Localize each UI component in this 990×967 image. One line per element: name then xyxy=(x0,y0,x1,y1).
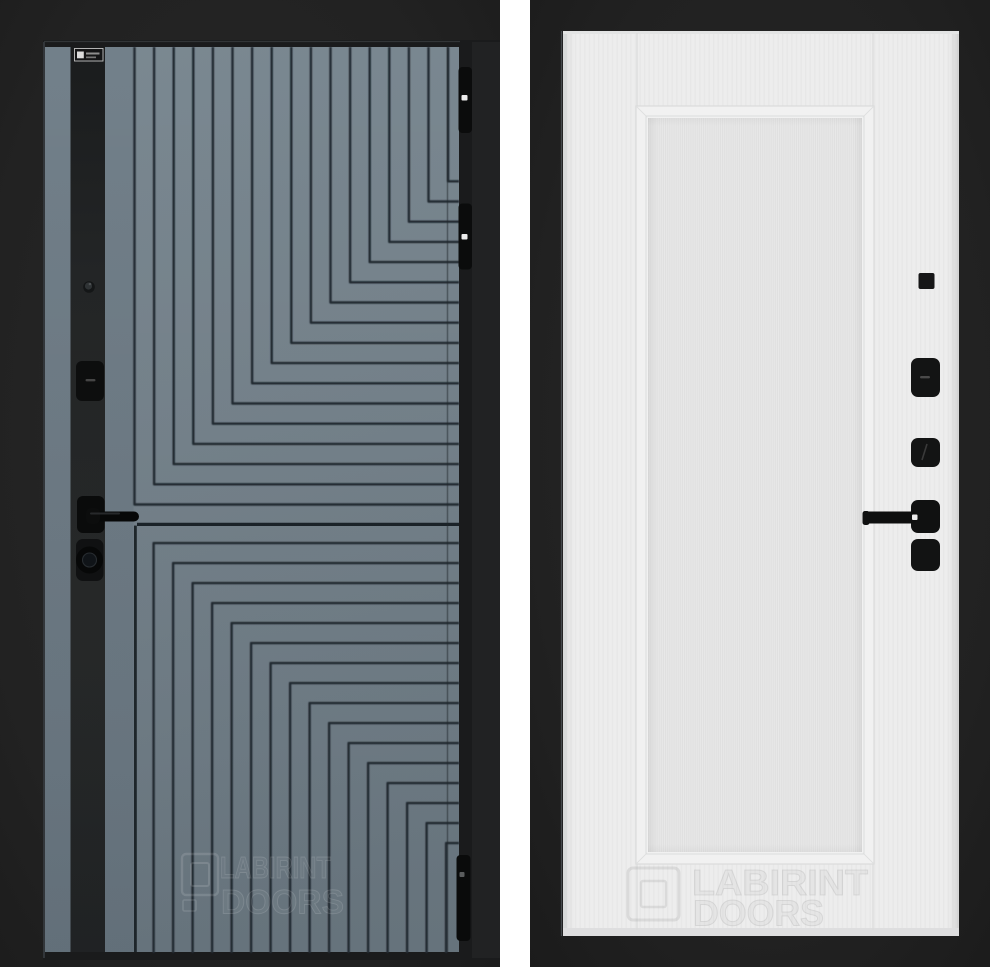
svg-text:DOORS: DOORS xyxy=(693,893,824,934)
svg-text:DOORS: DOORS xyxy=(221,884,344,922)
svg-text:LABIRINT: LABIRINT xyxy=(220,850,331,885)
